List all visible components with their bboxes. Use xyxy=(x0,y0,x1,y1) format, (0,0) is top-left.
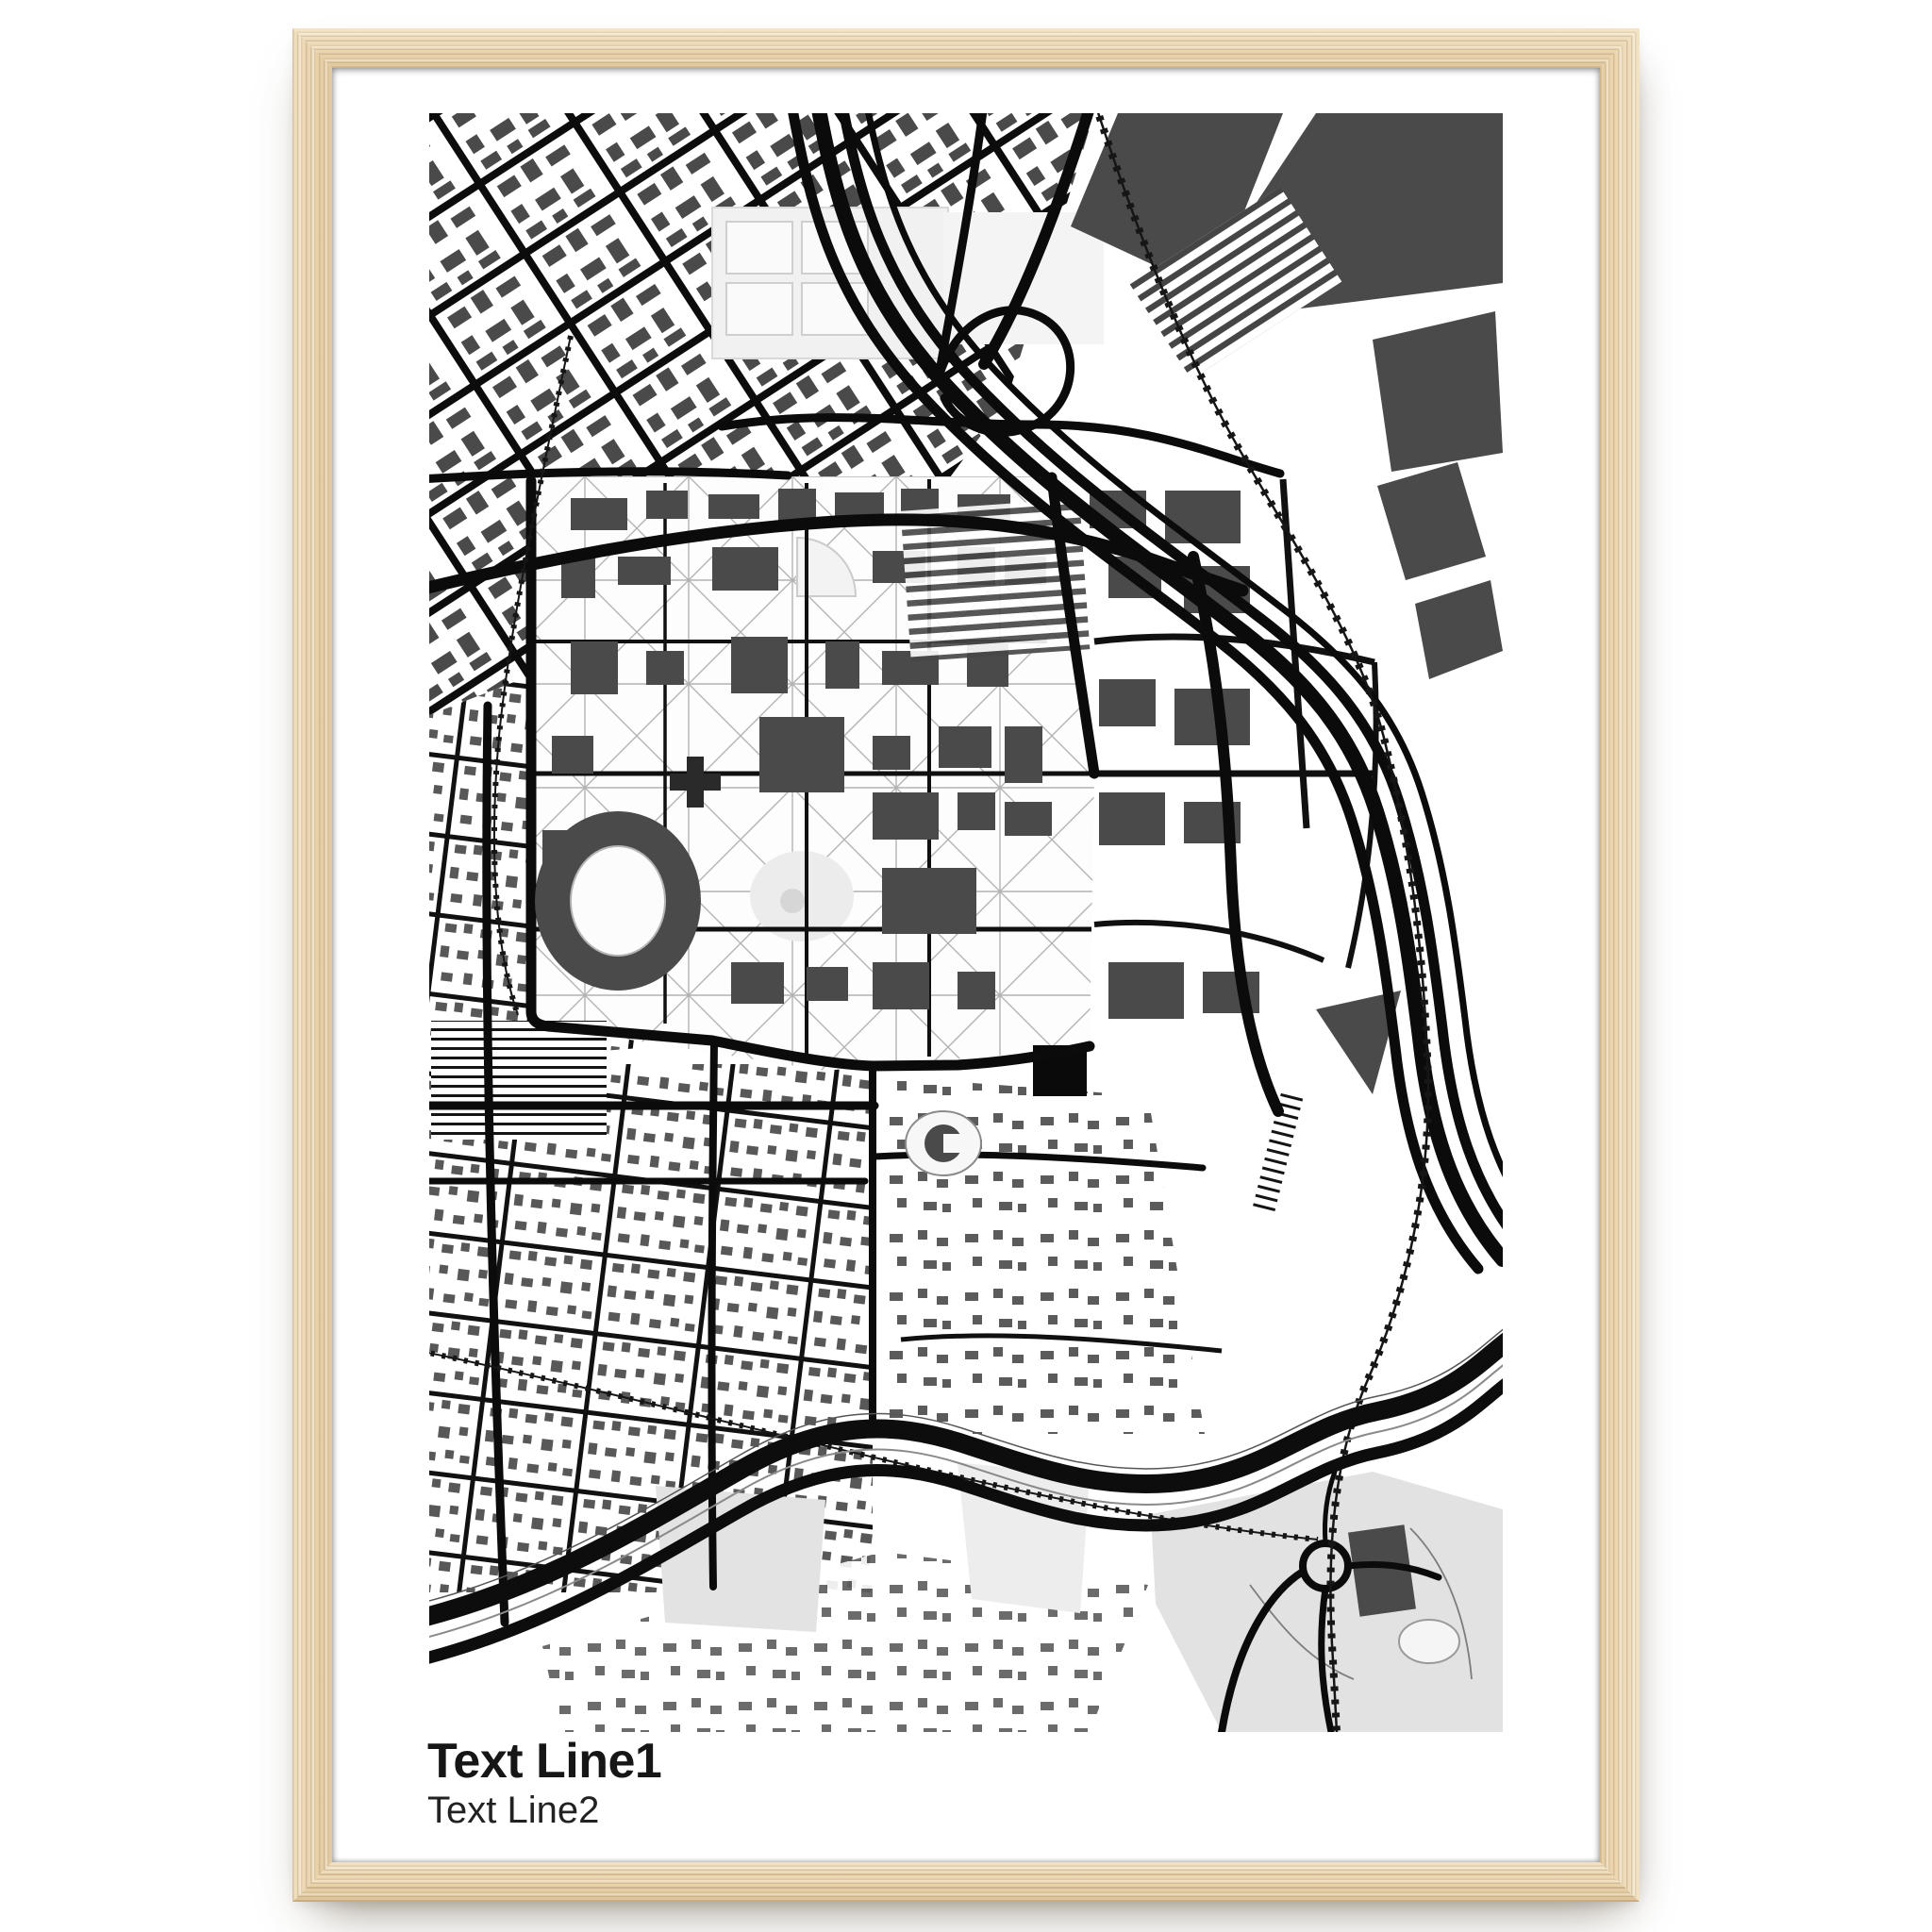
map-artwork xyxy=(429,113,1503,1732)
frame-side-right xyxy=(1600,28,1640,1902)
frame-side-top xyxy=(292,28,1640,68)
mockup-scene: Text Line1 Text Line2 xyxy=(0,0,1932,1932)
poster-caption: Text Line1 Text Line2 xyxy=(427,1734,661,1832)
picture-frame: Text Line1 Text Line2 xyxy=(292,28,1640,1902)
poster-paper: Text Line1 Text Line2 xyxy=(332,68,1600,1862)
poster-title: Text Line1 xyxy=(427,1734,661,1789)
frame-side-left xyxy=(292,28,332,1902)
frame-side-bottom xyxy=(292,1862,1640,1902)
poster-subtitle: Text Line2 xyxy=(427,1789,661,1832)
